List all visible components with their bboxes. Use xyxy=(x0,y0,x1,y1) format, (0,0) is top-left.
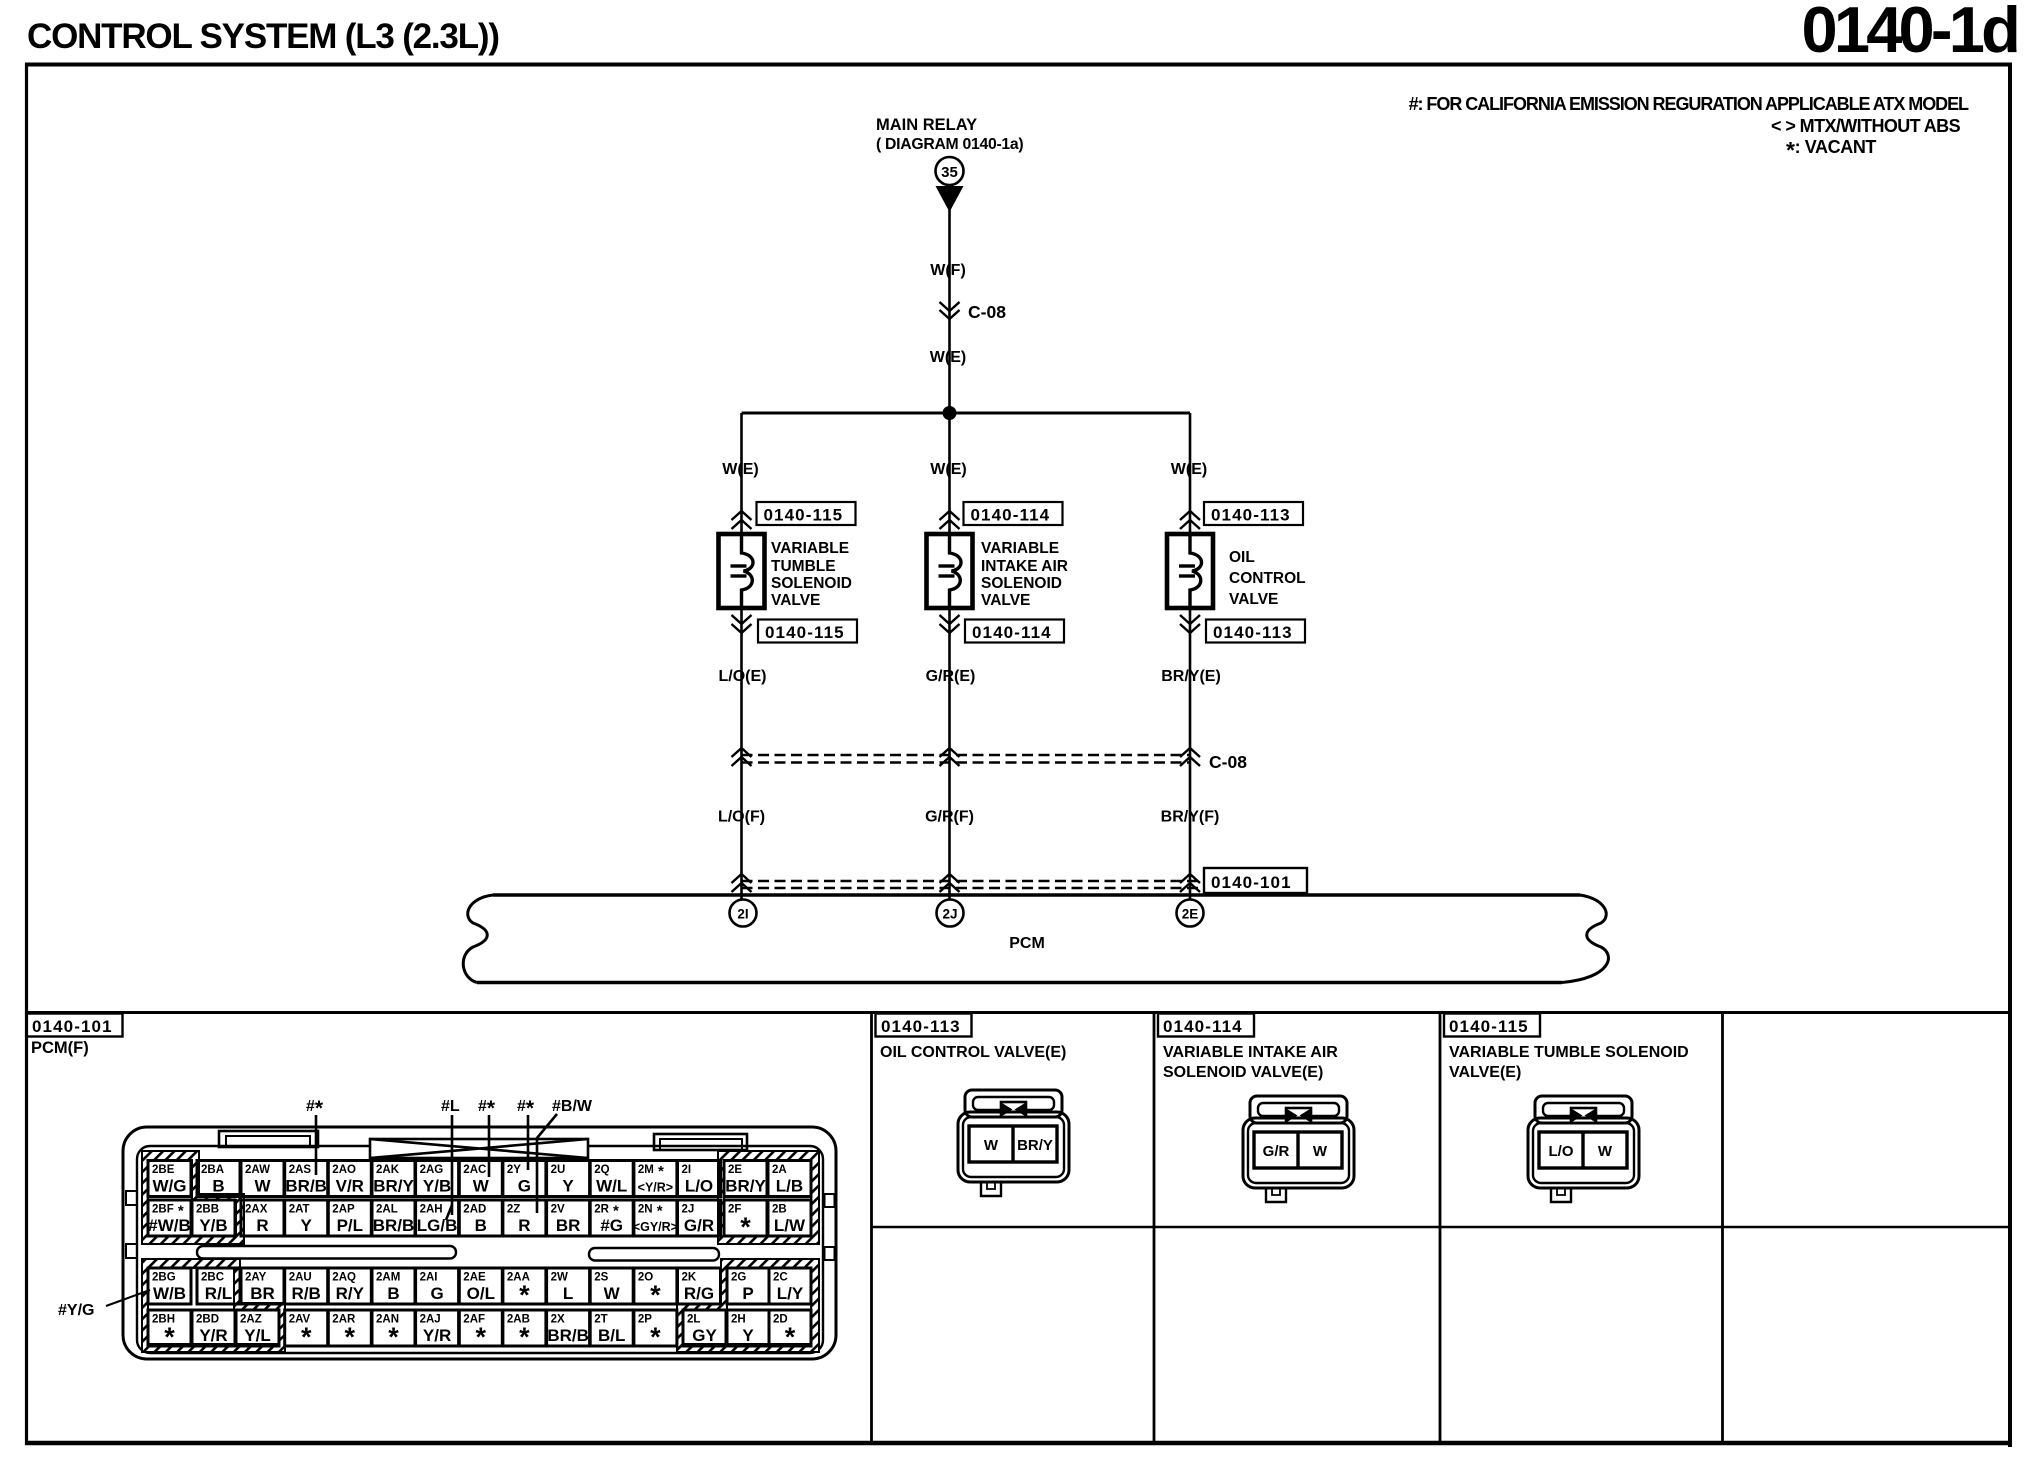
svg-text:L/Y: L/Y xyxy=(777,1284,804,1303)
svg-text:VARIABLE TUMBLE SOLENOID: VARIABLE TUMBLE SOLENOID xyxy=(1449,1044,1689,1061)
svg-text:W/B: W/B xyxy=(153,1284,186,1303)
svg-text:2AQ: 2AQ xyxy=(332,1272,356,1284)
svg-text:( DIAGRAM 0140-1a): ( DIAGRAM 0140-1a) xyxy=(876,136,1023,153)
svg-text:G: G xyxy=(430,1284,443,1303)
svg-text:R/B: R/B xyxy=(292,1284,321,1303)
svg-text:2J: 2J xyxy=(942,907,957,922)
svg-text:*: * xyxy=(388,1322,399,1352)
svg-text:0140-115: 0140-115 xyxy=(765,623,845,642)
svg-text:#G: #G xyxy=(600,1216,623,1235)
svg-text:CONTROL: CONTROL xyxy=(1229,570,1306,587)
svg-text:L/B: L/B xyxy=(776,1177,803,1196)
svg-text:TUMBLE: TUMBLE xyxy=(771,558,836,575)
svg-text:W(E): W(E) xyxy=(930,349,966,366)
svg-text:2BB: 2BB xyxy=(196,1204,219,1216)
svg-text:2E: 2E xyxy=(728,1164,742,1176)
svg-text:C-08: C-08 xyxy=(1209,752,1247,772)
svg-text:2AZ: 2AZ xyxy=(240,1314,262,1326)
svg-text:2AH: 2AH xyxy=(420,1204,443,1216)
svg-text:W(E): W(E) xyxy=(930,461,966,478)
svg-text:2AW: 2AW xyxy=(245,1164,270,1176)
svg-text:0140-115: 0140-115 xyxy=(1449,1017,1529,1036)
svg-text:R/Y: R/Y xyxy=(336,1284,365,1303)
svg-text:Y: Y xyxy=(562,1177,574,1196)
svg-text:Y/R: Y/R xyxy=(423,1326,451,1345)
svg-text:2BG: 2BG xyxy=(152,1272,176,1284)
svg-text:W: W xyxy=(254,1177,271,1196)
svg-text:BR/B: BR/B xyxy=(285,1177,327,1196)
svg-text:2AS: 2AS xyxy=(289,1164,312,1176)
svg-text:L/O(E): L/O(E) xyxy=(719,668,767,685)
svg-text:35: 35 xyxy=(941,164,958,181)
svg-text:2AL: 2AL xyxy=(376,1204,398,1216)
svg-text:0140-101: 0140-101 xyxy=(1211,873,1292,892)
svg-text:O/L: O/L xyxy=(467,1284,495,1303)
svg-text:Y: Y xyxy=(742,1326,754,1345)
svg-text:2AX: 2AX xyxy=(245,1204,268,1216)
svg-text:BR: BR xyxy=(250,1284,275,1303)
svg-text:B/L: B/L xyxy=(598,1326,625,1345)
svg-text:<GY/R>: <GY/R> xyxy=(633,1220,678,1234)
svg-text:BR/Y: BR/Y xyxy=(1017,1137,1053,1154)
svg-text:*: * xyxy=(519,1280,530,1310)
svg-text:BR: BR xyxy=(556,1216,581,1235)
svg-text:L/O(F): L/O(F) xyxy=(718,809,765,826)
svg-text:2G: 2G xyxy=(731,1272,746,1284)
svg-text:2K: 2K xyxy=(682,1272,697,1284)
svg-text:2A: 2A xyxy=(772,1164,787,1176)
svg-text:0140-115: 0140-115 xyxy=(764,506,844,525)
svg-text:<Y/R>: <Y/R> xyxy=(638,1181,673,1195)
svg-text:*: * xyxy=(519,1322,530,1352)
svg-text:VALVE(E): VALVE(E) xyxy=(1449,1064,1521,1081)
svg-text:2Z: 2Z xyxy=(507,1204,520,1216)
svg-text:*: * xyxy=(785,1322,796,1352)
svg-text:0140-113: 0140-113 xyxy=(1213,623,1293,642)
svg-text:< > MTX/WITHOUT ABS: < > MTX/WITHOUT ABS xyxy=(1771,116,1961,136)
svg-text:2W: 2W xyxy=(551,1272,568,1284)
svg-text:G/R(F): G/R(F) xyxy=(925,809,974,826)
svg-text:OIL: OIL xyxy=(1229,549,1255,566)
svg-text:G/R: G/R xyxy=(1263,1143,1290,1160)
svg-text:CONTROL SYSTEM (L3 (2.3L)): CONTROL SYSTEM (L3 (2.3L)) xyxy=(27,17,499,56)
svg-text:2AI: 2AI xyxy=(420,1272,438,1284)
svg-text:2BA: 2BA xyxy=(201,1164,224,1176)
svg-text:0140-114: 0140-114 xyxy=(971,506,1051,525)
svg-text:SOLENOID: SOLENOID xyxy=(981,575,1062,592)
svg-text:L/O: L/O xyxy=(1549,1143,1574,1160)
svg-text:BR/Y(F): BR/Y(F) xyxy=(1161,809,1220,826)
svg-text:2V: 2V xyxy=(551,1204,565,1216)
svg-text:2BE: 2BE xyxy=(152,1164,175,1176)
svg-text:BR/Y(E): BR/Y(E) xyxy=(1161,668,1221,685)
svg-text:R: R xyxy=(256,1216,268,1235)
svg-text:R/G: R/G xyxy=(684,1284,714,1303)
svg-text:L: L xyxy=(563,1284,573,1303)
svg-text:2L: 2L xyxy=(687,1314,700,1326)
svg-text:Y/B: Y/B xyxy=(423,1177,451,1196)
svg-text:2AP: 2AP xyxy=(332,1204,355,1216)
svg-text:W(E): W(E) xyxy=(722,461,758,478)
svg-text:P/L: P/L xyxy=(337,1216,363,1235)
svg-text:0140-101: 0140-101 xyxy=(32,1017,113,1036)
svg-text:BR/Y: BR/Y xyxy=(373,1177,414,1196)
svg-text:*: * xyxy=(301,1322,312,1352)
svg-text:2AY: 2AY xyxy=(245,1272,267,1284)
svg-text:2AE: 2AE xyxy=(463,1272,486,1284)
svg-text:GY: GY xyxy=(692,1326,717,1345)
svg-text:OIL CONTROL VALVE(E): OIL CONTROL VALVE(E) xyxy=(880,1044,1066,1061)
svg-text:B: B xyxy=(212,1177,224,1196)
svg-text:#L: #L xyxy=(441,1098,460,1115)
svg-text:R/L: R/L xyxy=(205,1284,232,1303)
svg-text:LG/B: LG/B xyxy=(417,1216,458,1235)
svg-text:W/L: W/L xyxy=(596,1177,627,1196)
svg-text:Y/R: Y/R xyxy=(199,1326,227,1345)
svg-text:#B/W: #B/W xyxy=(552,1098,593,1115)
svg-text:2S: 2S xyxy=(594,1272,608,1284)
svg-text:2T: 2T xyxy=(594,1314,607,1326)
svg-text:G/R(E): G/R(E) xyxy=(926,668,976,685)
svg-text:2Q: 2Q xyxy=(594,1164,609,1176)
svg-text:0140-113: 0140-113 xyxy=(881,1017,961,1036)
svg-text:2B: 2B xyxy=(772,1204,787,1216)
svg-text:PCM(F): PCM(F) xyxy=(31,1039,89,1057)
svg-text:#: FOR CALIFORNIA EMISSION REG: #: FOR CALIFORNIA EMISSION REGURATION AP… xyxy=(1409,94,1969,114)
svg-text:BR/B: BR/B xyxy=(373,1216,415,1235)
svg-text:2I: 2I xyxy=(682,1164,692,1176)
svg-text:2BC: 2BC xyxy=(201,1272,224,1284)
svg-text:VALVE: VALVE xyxy=(981,592,1030,609)
svg-text:G: G xyxy=(518,1177,531,1196)
svg-text:B: B xyxy=(387,1284,399,1303)
svg-text:W: W xyxy=(604,1284,621,1303)
svg-text:L/O: L/O xyxy=(685,1177,713,1196)
svg-text:2AJ: 2AJ xyxy=(420,1314,441,1326)
svg-text:INTAKE AIR: INTAKE AIR xyxy=(981,558,1068,575)
svg-text:W: W xyxy=(1598,1143,1613,1160)
svg-text:2H: 2H xyxy=(731,1314,746,1326)
svg-text:W(F): W(F) xyxy=(930,262,966,279)
svg-text:*: * xyxy=(650,1322,661,1352)
svg-text:Y/B: Y/B xyxy=(199,1216,227,1235)
svg-text:2X: 2X xyxy=(551,1314,565,1326)
svg-text:P: P xyxy=(742,1284,753,1303)
svg-text:BR/B: BR/B xyxy=(547,1326,589,1345)
svg-text:VARIABLE INTAKE AIR: VARIABLE INTAKE AIR xyxy=(1163,1044,1338,1061)
svg-text:VALVE: VALVE xyxy=(771,592,820,609)
svg-text:#W/B: #W/B xyxy=(148,1216,191,1235)
svg-text:B: B xyxy=(475,1216,487,1235)
svg-text:2I: 2I xyxy=(737,907,748,922)
svg-text:0140-1d: 0140-1d xyxy=(1802,0,2018,66)
svg-text:2AM: 2AM xyxy=(376,1272,400,1284)
svg-text:2Y: 2Y xyxy=(507,1164,521,1176)
svg-text:0140-113: 0140-113 xyxy=(1211,506,1291,525)
svg-text:SOLENOID VALVE(E): SOLENOID VALVE(E) xyxy=(1163,1064,1323,1081)
svg-text:2E: 2E xyxy=(1182,907,1199,922)
svg-text:W: W xyxy=(984,1137,999,1154)
svg-text:2AC: 2AC xyxy=(463,1164,486,1176)
svg-text:VARIABLE: VARIABLE xyxy=(771,540,849,557)
svg-text:C-08: C-08 xyxy=(968,302,1006,322)
svg-text:2J: 2J xyxy=(682,1204,695,1216)
svg-text:0140-114: 0140-114 xyxy=(972,623,1052,642)
svg-text:2AU: 2AU xyxy=(289,1272,312,1284)
svg-text:2C: 2C xyxy=(773,1272,788,1284)
svg-text:*: * xyxy=(650,1280,661,1310)
svg-text:*: * xyxy=(740,1212,751,1242)
svg-text:L/W: L/W xyxy=(774,1216,806,1235)
svg-text:*: * xyxy=(164,1322,175,1352)
svg-text:2AK: 2AK xyxy=(376,1164,400,1176)
svg-text:*: * xyxy=(345,1322,356,1352)
svg-text:VALVE: VALVE xyxy=(1229,591,1278,608)
svg-text:2U: 2U xyxy=(551,1164,566,1176)
svg-text:W(E): W(E) xyxy=(1171,461,1207,478)
svg-text:2AG: 2AG xyxy=(420,1164,444,1176)
svg-text:W: W xyxy=(473,1177,490,1196)
svg-text:*: * xyxy=(476,1322,487,1352)
svg-text:SOLENOID: SOLENOID xyxy=(771,575,852,592)
svg-text:2AD: 2AD xyxy=(463,1204,486,1216)
svg-text:Y/L: Y/L xyxy=(244,1326,270,1345)
svg-text:W/G: W/G xyxy=(153,1177,187,1196)
svg-text:BR/Y: BR/Y xyxy=(725,1177,766,1196)
svg-text:2AT: 2AT xyxy=(289,1204,310,1216)
svg-text:V/R: V/R xyxy=(336,1177,364,1196)
svg-text:2BD: 2BD xyxy=(196,1314,219,1326)
svg-text:PCM: PCM xyxy=(1009,935,1045,952)
svg-text:VARIABLE: VARIABLE xyxy=(981,540,1059,557)
svg-text:W: W xyxy=(1313,1143,1328,1160)
svg-text:#Y/G: #Y/G xyxy=(58,1302,94,1319)
svg-text:R: R xyxy=(518,1216,530,1235)
svg-text:0140-114: 0140-114 xyxy=(1163,1017,1243,1036)
svg-text:G/R: G/R xyxy=(684,1216,714,1235)
svg-text:Y: Y xyxy=(301,1216,313,1235)
svg-text:MAIN RELAY: MAIN RELAY xyxy=(876,116,977,134)
svg-text:2AO: 2AO xyxy=(332,1164,356,1176)
